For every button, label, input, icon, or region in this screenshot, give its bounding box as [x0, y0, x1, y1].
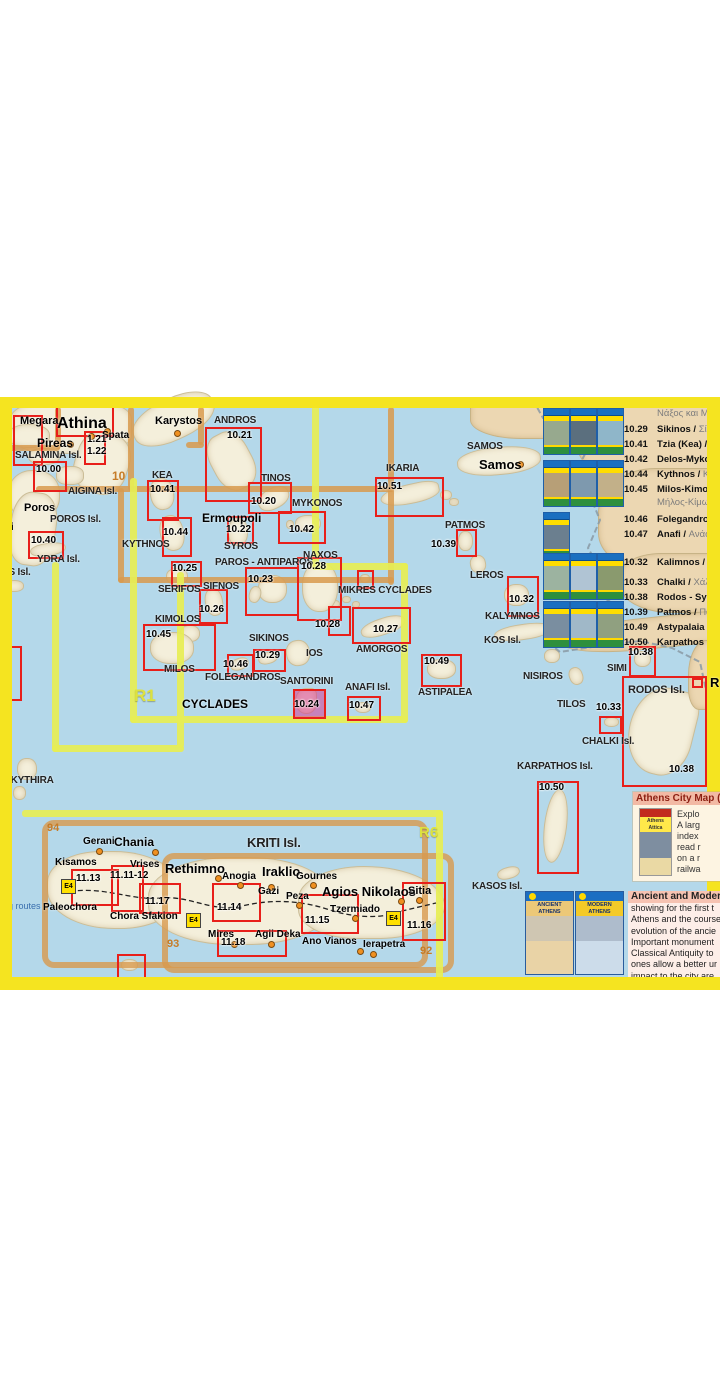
cover-photo — [526, 916, 573, 941]
coverage-box — [537, 781, 579, 874]
place-label: ANAFI Isl. — [345, 682, 390, 693]
place-label: Chania — [114, 835, 154, 849]
place-label: KYTHNOS — [122, 539, 170, 550]
island — [544, 649, 560, 663]
place-label: Gournes — [296, 871, 337, 882]
map-cover-thumbnail — [597, 553, 624, 600]
ancient-modern-description-line: Athens and the course — [631, 914, 720, 925]
index-entry-number: 10.29 — [624, 424, 648, 435]
cover-blue-band — [576, 892, 623, 901]
place-label: Pireas — [37, 436, 73, 450]
cover-green-band — [571, 590, 596, 599]
cover-green-band — [544, 638, 569, 647]
map-index-page: 1.211.2210.0010.4010.4110.4410.2510.2610… — [0, 0, 720, 1380]
coverage-box-number: 1.22 — [87, 446, 106, 457]
coverage-box-number: 10.32 — [509, 594, 534, 605]
island — [13, 786, 26, 800]
cover-blue-band — [571, 602, 596, 609]
athens-description-line: read r — [677, 842, 720, 853]
coverage-box-number: 1.21 — [87, 434, 106, 445]
cover-map-strip — [526, 941, 573, 975]
coverage-box-number: 10.25 — [172, 563, 197, 574]
sheet-10-boundary-line — [186, 442, 204, 448]
cover-green-band — [571, 445, 596, 454]
cover-blue-band — [571, 409, 596, 416]
ancient-modern-description: showing for the first tAthens and the co… — [628, 903, 720, 977]
coverage-box-number: 11.18 — [221, 937, 245, 948]
cover-blue-band — [571, 554, 596, 561]
coverage-box-number: 10.33 — [596, 702, 621, 713]
cover-photo — [598, 566, 623, 590]
cover-blue-band — [598, 554, 623, 561]
cover-photo — [571, 614, 596, 638]
place-label: KRITI Isl. — [247, 835, 301, 850]
cover-map-strip — [640, 858, 671, 876]
coverage-box-number: 10.20 — [251, 496, 276, 507]
place-label: SALAMINA Isl. — [15, 450, 81, 461]
place-label: Vrises — [130, 859, 159, 870]
cover-green-band — [598, 445, 623, 454]
place-label: LEROS — [470, 570, 503, 581]
index-name-latin: Sikinos / — [657, 424, 699, 435]
place-label: POROS Isl. — [50, 514, 101, 525]
place-label: 92 — [420, 945, 432, 957]
map-cover-thumbnail — [570, 460, 597, 507]
coverage-box-number: 11.11-12 — [110, 870, 148, 881]
index-entry-number: 10.33 — [624, 577, 648, 588]
index-name-latin: Kythnos / — [657, 469, 703, 480]
cover-blue-band — [544, 513, 569, 520]
coverage-box-number: 10.40 — [31, 535, 56, 546]
place-label: KARPATHOS Isl. — [517, 761, 593, 772]
coverage-box-number: 10.46 — [223, 659, 248, 670]
cover-blue-band — [544, 602, 569, 609]
place-label: AIGINA Isl. — [68, 486, 117, 497]
place-label: Paleochora — [43, 902, 97, 913]
cover-green-band — [571, 497, 596, 506]
index-name-latin: Tzia (Kea) / — [657, 439, 710, 450]
athens-description-line: Explo — [677, 809, 720, 820]
index-name-latin: Anafi / — [657, 529, 689, 540]
athens-description-line: index — [677, 831, 720, 842]
place-label: KASOS Isl. — [472, 881, 522, 892]
cover-blue-band — [598, 602, 623, 609]
index-entry-number: 10.32 — [624, 557, 648, 568]
coverage-box-number: 10.39 — [431, 539, 456, 550]
coverage-box-number: 11.17 — [145, 896, 169, 907]
cover-photo — [544, 566, 569, 590]
cover-title-line2: ATHENS — [576, 909, 623, 916]
coverage-box-number: 10.29 — [255, 650, 280, 661]
coverage-box-number: 11.13 — [76, 873, 100, 884]
index-entry-number: 10.42 — [624, 454, 648, 465]
map-cover-thumbnail — [597, 460, 624, 507]
cover-green-band — [544, 590, 569, 599]
cover-blue-band — [544, 554, 569, 561]
place-label: TINOS — [261, 473, 291, 484]
cover-photo — [598, 473, 623, 497]
place-label: 93 — [167, 938, 179, 950]
town-dot — [310, 882, 317, 889]
cover-blue-band — [571, 461, 596, 468]
place-label: SYROS — [224, 541, 258, 552]
cover-blue-band — [598, 461, 623, 468]
place-label: g routes — [8, 901, 41, 911]
coverage-box-number: 10.23 — [248, 574, 273, 585]
index-name-latin: Kalimnos / — [657, 557, 708, 568]
coverage-box-number: 10.28 — [301, 561, 326, 572]
athens-city-map-panel: Athens City Map (1 Athens Attica ExploA … — [633, 792, 720, 881]
coverage-box — [456, 529, 477, 557]
map-frame-left — [0, 397, 12, 990]
place-label: Peza — [286, 891, 309, 902]
cover-title-band: ANCIENT ATHENS — [526, 901, 573, 916]
coverage-box-number: 10.49 — [424, 656, 449, 667]
island — [449, 498, 459, 506]
map-cover-thumbnail — [543, 408, 570, 455]
place-label: SIFNOS — [203, 581, 239, 592]
cover-title-band: Athens Attica — [640, 817, 671, 832]
index-entry-number: 10.41 — [624, 439, 648, 450]
sheet-10-boundary-line — [118, 488, 124, 583]
e4-route-badge: E4 — [186, 913, 201, 928]
index-entry-number: 10.47 — [624, 529, 648, 540]
index-entry-number: 10.38 — [624, 592, 648, 603]
cover-photo — [598, 614, 623, 638]
coverage-box-number: 10.00 — [36, 464, 61, 475]
place-label: NISIROS — [523, 671, 563, 682]
modern-athens-cover: MODERN ATHENS — [575, 891, 624, 975]
ancient-athens-cover: ANCIENT ATHENS — [525, 891, 574, 975]
publisher-logo-icon — [579, 893, 586, 900]
place-label: Ierapetra — [363, 939, 405, 950]
place-label: SIMI — [607, 663, 627, 674]
ancient-modern-title: Ancient and Modern — [628, 891, 720, 903]
publisher-logo-icon — [529, 893, 536, 900]
place-label: 94 — [47, 822, 59, 834]
cover-red-band — [640, 809, 671, 817]
place-label: KOS Isl. — [484, 635, 521, 646]
map-cover-thumbnail — [543, 460, 570, 507]
coverage-box-number: 10.38 — [628, 647, 653, 658]
cover-photo — [571, 421, 596, 445]
coverage-box-number: 10.50 — [539, 782, 564, 793]
place-label: ASTIPALEA — [418, 687, 472, 698]
place-label: SAMOS — [467, 441, 503, 452]
ancient-modern-text-panel: Ancient and Modern showing for the first… — [628, 891, 720, 977]
coverage-box — [692, 678, 703, 688]
athens-city-map-title: Athens City Map (1 — [633, 792, 720, 805]
place-label: PAROS - ANTIPAROS — [215, 557, 313, 568]
map-cover-thumbnail — [570, 553, 597, 600]
place-label: Agios Nikolaos — [322, 884, 416, 899]
place-label: Poros — [24, 502, 55, 514]
place-label: MILOS — [164, 664, 195, 675]
ancient-modern-description-line: evolution of the ancie — [631, 926, 720, 937]
coverage-box — [599, 716, 622, 734]
coverage-box-number: 10.51 — [377, 481, 402, 492]
cover-photo — [576, 916, 623, 941]
place-label: CYCLADES — [182, 697, 248, 711]
index-entry-number: 10.44 — [624, 469, 648, 480]
place-label: FOLEGANDROS — [205, 672, 281, 683]
place-label: CHALKI Isl. — [582, 736, 634, 747]
town-dot — [237, 882, 244, 889]
cover-photo — [571, 566, 596, 590]
place-label: IOS — [306, 648, 323, 659]
index-entry-number: 10.49 — [624, 622, 648, 633]
place-label: SIKINOS — [249, 633, 289, 644]
region-boundary-line — [52, 745, 184, 752]
place-label: Samos — [479, 457, 522, 472]
cover-green-band — [571, 638, 596, 647]
place-label: Rethimno — [165, 861, 225, 876]
cover-title-line1: MODERN — [576, 902, 623, 909]
index-name-latin: Patmos / — [657, 607, 699, 618]
cover-green-band — [598, 497, 623, 506]
place-label: TILOS — [557, 699, 585, 710]
cover-map-strip — [576, 941, 623, 975]
athens-attica-cover-thumbnail: Athens Attica — [639, 808, 672, 876]
e4-route-badge: E4 — [386, 911, 401, 926]
place-label: Gazi — [258, 886, 279, 897]
place-label: IKARIA — [386, 463, 419, 474]
place-label: Athina — [57, 415, 107, 433]
cover-title-line1: ANCIENT — [526, 902, 573, 909]
place-label: YDRA Isl. — [37, 554, 80, 565]
cover-green-band — [598, 590, 623, 599]
place-label: KEA — [152, 470, 173, 481]
index-name-latin: Chalki / — [657, 577, 693, 588]
athens-description-line: railwa — [677, 864, 720, 875]
place-label: Ano Vianos — [302, 936, 357, 947]
place-label: Chora Sfakion — [110, 911, 178, 922]
region-boundary-line — [52, 562, 59, 752]
cover-photo — [544, 473, 569, 497]
place-label: R — [710, 675, 719, 690]
region-boundary-line — [312, 403, 319, 570]
place-label: SERIFOS — [158, 584, 201, 595]
cover-photo — [598, 421, 623, 445]
place-label: MIKRES CYCLADES — [338, 585, 432, 596]
index-entry-number: 10.46 — [624, 514, 648, 525]
cover-blue-band — [598, 409, 623, 416]
cover-title-line2: ATHENS — [526, 909, 573, 916]
ancient-modern-description-line: ones allow a better ur — [631, 959, 720, 970]
place-label: ANDROS — [214, 415, 256, 426]
cover-photo — [544, 614, 569, 638]
place-label: R1 — [134, 686, 156, 706]
coverage-box-number: 10.47 — [349, 700, 374, 711]
map-cover-thumbnail — [543, 512, 570, 559]
place-label: Sitia — [408, 885, 431, 897]
ancient-modern-description-line: showing for the first t — [631, 903, 720, 914]
index-entry-number: 10.45 — [624, 484, 648, 495]
cover-green-band — [544, 445, 569, 454]
town-dot — [96, 848, 103, 855]
town-dot — [174, 430, 181, 437]
coverage-box-number: 10.45 — [146, 629, 171, 640]
map-frame-bottom — [0, 977, 720, 990]
place-label: Gerani — [83, 836, 115, 847]
index-name-latin: Astypalaia / — [657, 622, 712, 633]
cover-blue-band — [526, 892, 573, 901]
coverage-box-number: 10.27 — [373, 624, 398, 635]
coverage-box-number: 10.42 — [289, 524, 314, 535]
index-entry-number: 10.39 — [624, 607, 648, 618]
place-label: Kisamos — [55, 857, 97, 868]
coverage-box-number: 11.16 — [407, 920, 431, 931]
cover-photo — [640, 832, 671, 858]
athens-city-map-description: ExploA largindexread ron a rrailwa — [677, 809, 720, 875]
place-label: Anogia — [222, 871, 256, 882]
cover-blue-band — [544, 461, 569, 468]
coverage-box-number: 11.14 — [217, 902, 241, 913]
coverage-box-number: 11.15 — [305, 915, 329, 926]
place-label: PATMOS — [445, 520, 485, 531]
place-label: Ermoupoli — [202, 511, 261, 525]
coverage-box-number: 10.44 — [163, 527, 188, 538]
cover-green-band — [544, 497, 569, 506]
place-label: MYKONOS — [292, 498, 342, 509]
map-cover-thumbnail — [543, 553, 570, 600]
town-dot — [296, 902, 303, 909]
town-dot — [215, 875, 222, 882]
cover-photo — [571, 473, 596, 497]
place-label: SANTORINI — [280, 676, 333, 687]
place-label: Megara — [20, 415, 59, 427]
map-cover-thumbnail — [597, 408, 624, 455]
e4-route-badge: E4 — [61, 879, 76, 894]
coverage-box-number: 10.28 — [315, 619, 340, 630]
cover-green-band — [598, 638, 623, 647]
map-cover-thumbnail — [543, 601, 570, 648]
place-label: AMORGOS — [356, 644, 407, 655]
place-label: Iraklio — [262, 864, 300, 879]
coverage-box-number: 10.21 — [227, 430, 252, 441]
map-cover-thumbnail — [570, 408, 597, 455]
cover-title-line2: Attica — [640, 825, 671, 832]
athens-description-line: A larg — [677, 820, 720, 831]
town-dot — [352, 915, 359, 922]
ancient-modern-description-line: Classical Antiquity to — [631, 948, 720, 959]
cover-blue-band — [544, 409, 569, 416]
town-dot — [398, 898, 405, 905]
coverage-box-number: 10.24 — [294, 699, 319, 710]
index-entry-number: 10.50 — [624, 637, 648, 648]
map-cover-thumbnail — [597, 601, 624, 648]
region-boundary-line — [22, 810, 443, 817]
cover-photo — [544, 421, 569, 445]
town-dot — [268, 941, 275, 948]
town-dot — [370, 951, 377, 958]
place-label: KALYMNOS — [485, 611, 540, 622]
cover-photo — [544, 525, 569, 549]
coverage-box-number: 10.26 — [199, 604, 224, 615]
map-cover-thumbnail — [570, 601, 597, 648]
place-label: IKYTHIRA — [8, 775, 54, 786]
ancient-modern-description-line: Important monument — [631, 937, 720, 948]
place-label: 10 — [112, 469, 125, 483]
place-label: Karystos — [155, 415, 202, 427]
place-label: RODOS Isl. — [628, 684, 685, 696]
place-label: Agii Deka — [255, 929, 301, 940]
coverage-box-number: 10.38 — [669, 764, 694, 775]
athens-description-line: on a r — [677, 853, 720, 864]
coverage-box-number: 10.22 — [226, 524, 251, 535]
coverage-box-number: 10.41 — [150, 484, 175, 495]
town-dot — [416, 897, 423, 904]
place-label: R6 — [419, 824, 438, 841]
place-label: KIMOLOS — [155, 614, 200, 625]
town-dot — [152, 849, 159, 856]
island — [342, 596, 351, 603]
cover-title-band: MODERN ATHENS — [576, 901, 623, 916]
map-frame-top — [0, 397, 720, 408]
place-label: Tzermiado — [330, 904, 380, 915]
